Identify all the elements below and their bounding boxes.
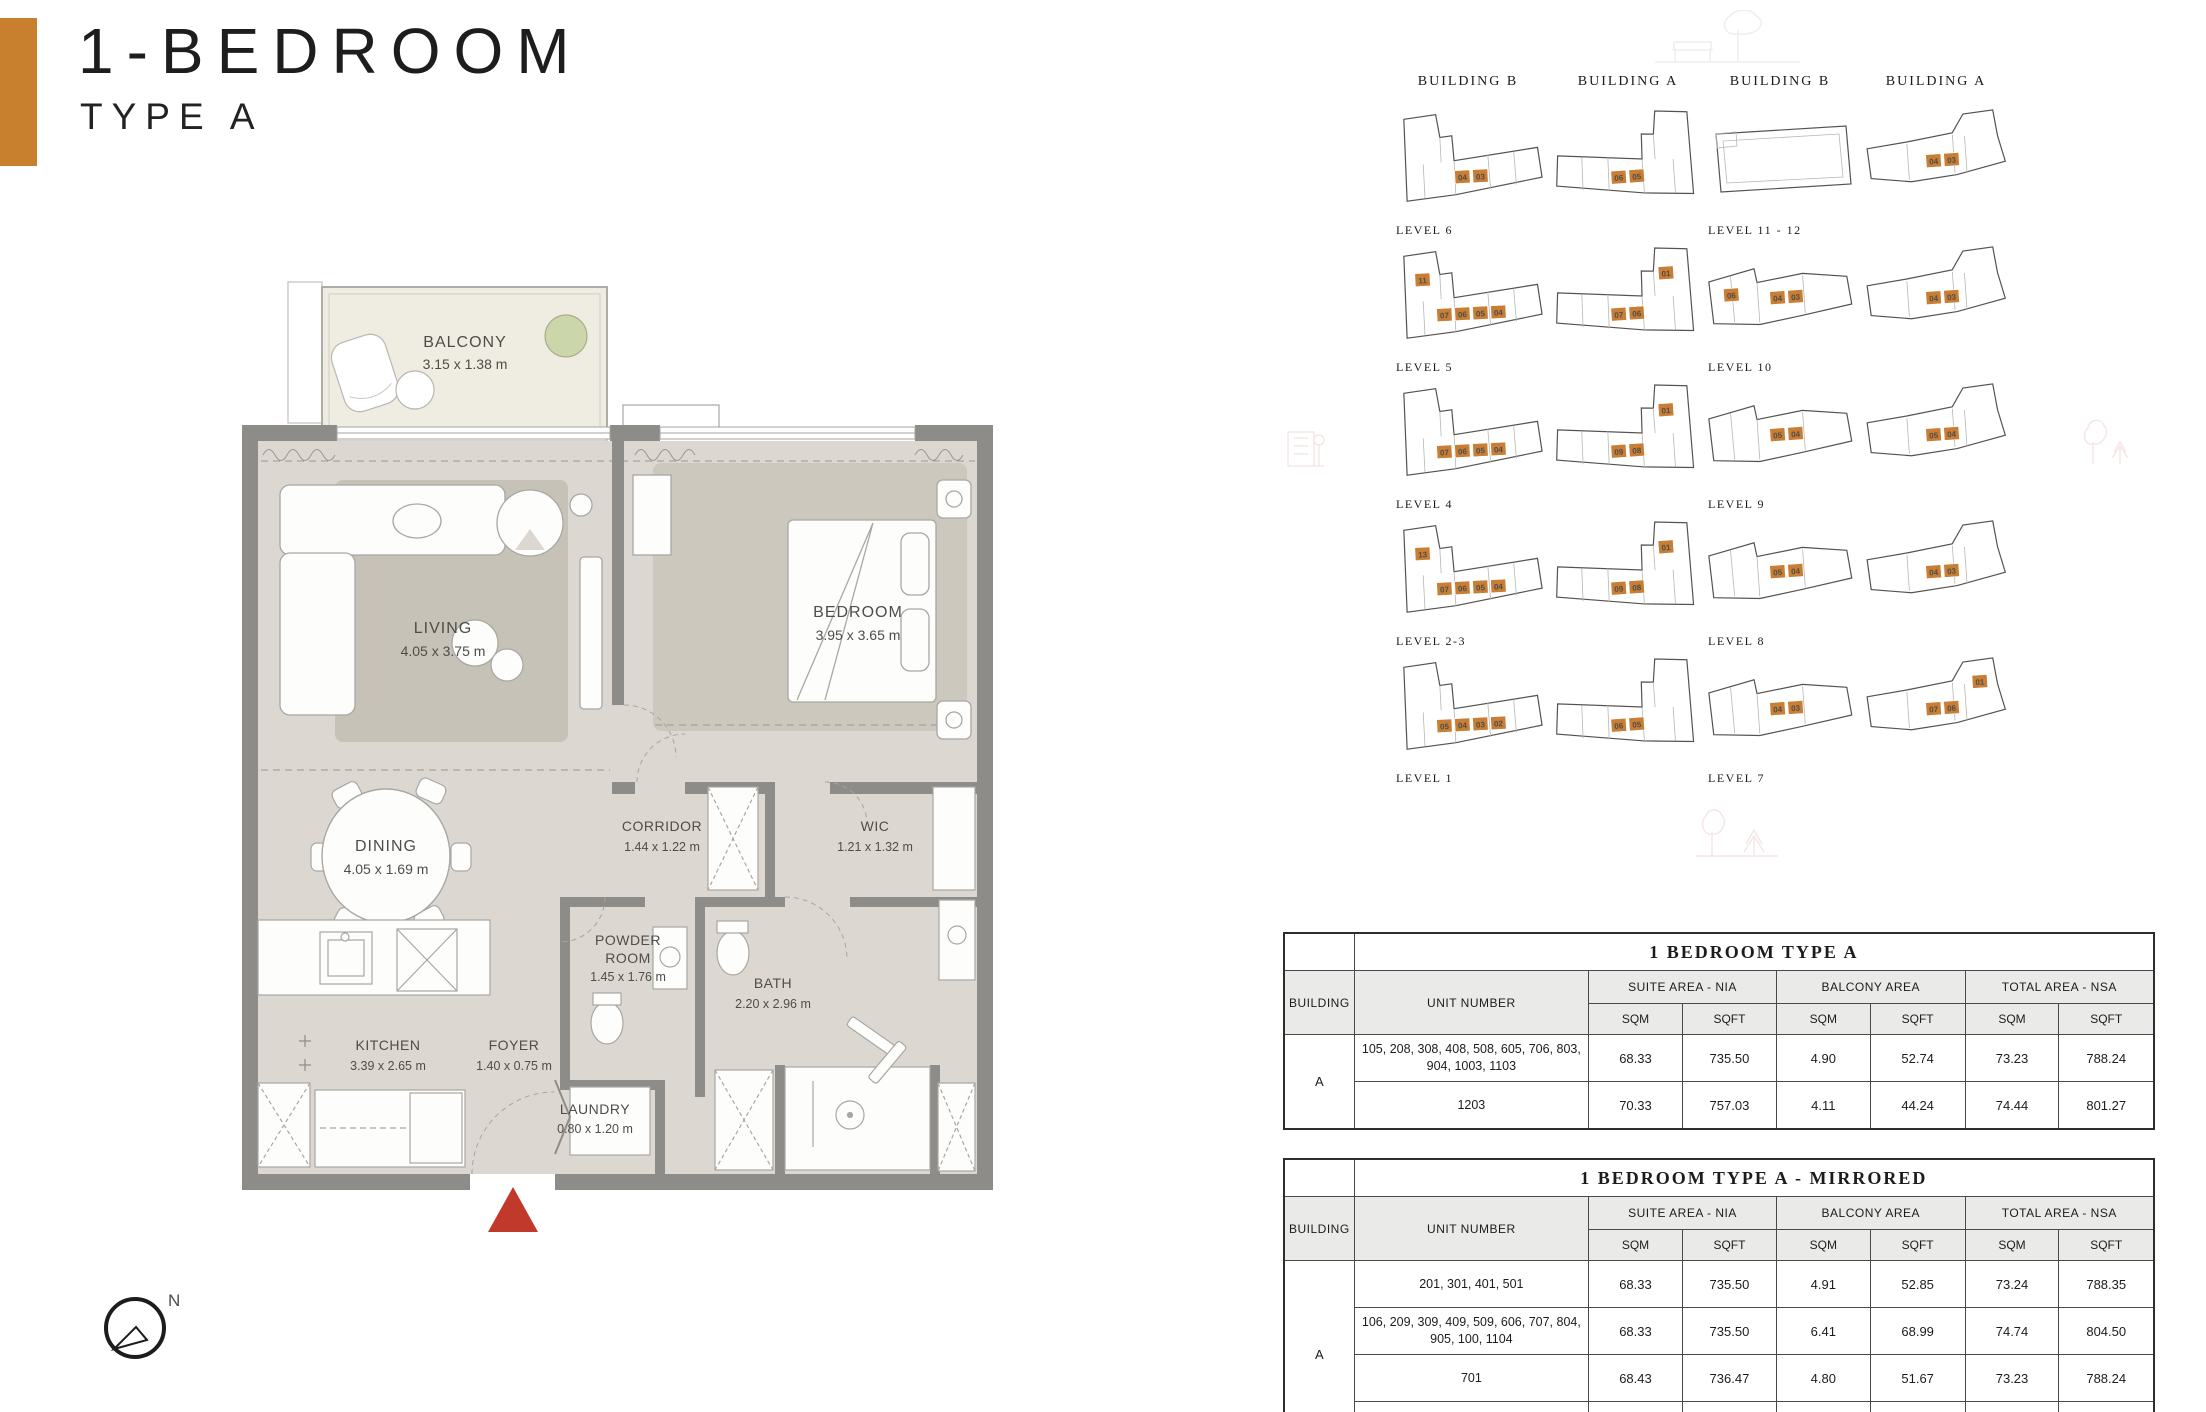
kitchen-dims: 3.39 x 2.65 m — [350, 1059, 426, 1073]
unit-number: 03 — [1791, 293, 1801, 303]
tree-icon — [545, 315, 587, 357]
unit-number: 04 — [1494, 582, 1504, 591]
column-subheader: SQM — [1589, 1004, 1683, 1035]
area-value-cell: 74.44 — [1965, 1082, 2059, 1130]
area-value-cell: 735.50 — [1682, 1261, 1776, 1308]
unit-number: 05 — [1476, 446, 1486, 455]
unit-number: 04 — [1947, 430, 1957, 440]
building-header-3: BUILDING B — [1700, 74, 1860, 94]
floor-plan: BALCONY 3.15 x 1.38 m — [225, 185, 1015, 1255]
column-subheader: SQM — [1965, 1230, 2059, 1261]
area-value-cell: 735.50 — [1682, 1308, 1776, 1355]
unit-number: 04 — [1791, 567, 1801, 577]
level-diagram: 0403 — [1856, 241, 2016, 375]
unit-number: 04 — [1458, 173, 1468, 182]
unit-number: 05 — [1476, 583, 1486, 592]
level-diagram: 090801 — [1548, 378, 1708, 512]
unit-number: 06 — [1458, 584, 1468, 593]
wic-label: WIC — [861, 818, 890, 834]
corner-cell — [1284, 1159, 1354, 1197]
column-header-area-group: SUITE AREA - NIA — [1589, 1197, 1777, 1230]
unit-number: 04 — [1494, 308, 1504, 317]
level-diagram: 090801 — [1548, 515, 1708, 649]
area-value-cell: 788.35 — [2059, 1261, 2154, 1308]
compass-icon: N — [88, 1278, 188, 1378]
area-value-cell: 736.47 — [1682, 1355, 1776, 1402]
balcony-area: BALCONY 3.15 x 1.38 m — [288, 282, 719, 441]
trees-watermark — [2078, 412, 2138, 472]
level-diagram: 0403 — [1856, 515, 2016, 649]
table-row: 120370.33757.034.1144.2474.44801.27 — [1284, 1082, 2154, 1130]
area-value-cell: 4.91 — [1776, 1261, 1870, 1308]
foyer-label: FOYER — [489, 1037, 540, 1053]
level-label: LEVEL 6 — [1396, 223, 1453, 238]
column-subheader: SQFT — [1870, 1230, 1965, 1261]
level-label: LEVEL 10 — [1708, 360, 1773, 375]
area-value-cell: 73.23 — [1965, 1355, 2059, 1402]
column-subheader: SQM — [1776, 1230, 1870, 1261]
area-value-cell: 73.23 — [1965, 1035, 2059, 1082]
kitchen-label: KITCHEN — [356, 1037, 421, 1053]
column-header-area-group: BALCONY AREA — [1776, 1197, 1965, 1230]
level-diagram: 0403 — [1856, 104, 2016, 238]
table-title: 1 BEDROOM TYPE A - MIRRORED — [1354, 1159, 2154, 1197]
unit-number: 04 — [1494, 445, 1504, 454]
unit-number: 05 — [1773, 568, 1783, 578]
corridor-label: CORRIDOR — [622, 818, 702, 834]
level-label: LEVEL 9 — [1708, 497, 1765, 512]
level-label: LEVEL 4 — [1396, 497, 1453, 512]
column-subheader: SQM — [1589, 1230, 1683, 1261]
unit-number: 08 — [1632, 446, 1642, 456]
area-value-cell: 51.67 — [1870, 1355, 1965, 1402]
column-subheader: SQFT — [1682, 1230, 1776, 1261]
area-value-cell: 68.99 — [1870, 1308, 1965, 1355]
area-value-cell: 70.60 — [1589, 1402, 1683, 1412]
unit-number: 01 — [1661, 543, 1671, 553]
area-value-cell: 58.99 — [1870, 1402, 1965, 1412]
column-header-area-group: SUITE AREA - NIA — [1589, 971, 1777, 1004]
trees-watermark-2 — [1692, 800, 1782, 864]
area-value-cell: 68.33 — [1589, 1035, 1683, 1082]
unit-number-cell: 201, 301, 401, 501 — [1354, 1261, 1588, 1308]
balcony-label: BALCONY — [423, 334, 506, 351]
bedroom-label: BEDROOM — [813, 604, 903, 621]
unit-number: 13 — [1418, 550, 1428, 559]
column-header-area-group: BALCONY AREA — [1776, 971, 1965, 1004]
unit-number: 05 — [1632, 172, 1642, 182]
column-subheader: SQFT — [2059, 1004, 2154, 1035]
dining-dims: 4.05 x 1.69 m — [344, 861, 429, 877]
level-diagram: 07060504LEVEL 4 — [1388, 378, 1548, 512]
unit-number: 03 — [1947, 293, 1957, 303]
column-header-area-group: TOTAL AREA - NSA — [1965, 1197, 2154, 1230]
unit-number: 01 — [1661, 406, 1671, 416]
unit-number: 09 — [1614, 447, 1624, 457]
unit-number: 06 — [1458, 447, 1468, 456]
unit-number: 03 — [1791, 704, 1801, 714]
area-value-cell: 52.85 — [1870, 1261, 1965, 1308]
level-diagram: LEVEL 11 - 12 — [1700, 104, 1860, 238]
area-table-type-a: 1 BEDROOM TYPE ABUILDINGUNIT NUMBERSUITE… — [1283, 932, 2155, 1130]
column-subheader: SQFT — [1682, 1004, 1776, 1035]
table-row: 120470.60759.935.4858.9976.08818.92 — [1284, 1402, 2154, 1412]
level-label: LEVEL 1 — [1396, 771, 1453, 786]
column-header-building: BUILDING — [1284, 971, 1354, 1035]
unit-number: 04 — [1929, 157, 1939, 167]
table-row: 106, 209, 309, 409, 509, 606, 707, 804, … — [1284, 1308, 2154, 1355]
accent-bar — [0, 18, 37, 166]
unit-number: 04 — [1773, 705, 1783, 715]
level-diagram: 0706050413LEVEL 2-3 — [1388, 515, 1548, 649]
level-label: LEVEL 8 — [1708, 634, 1765, 649]
dining-label: DINING — [355, 838, 417, 855]
unit-number: 03 — [1947, 156, 1957, 166]
laundry-dims: 0.80 x 1.20 m — [557, 1122, 633, 1136]
bath-dims: 2.20 x 2.96 m — [735, 997, 811, 1011]
building-header-1: BUILDING B — [1388, 74, 1548, 94]
area-value-cell: 788.24 — [2059, 1355, 2154, 1402]
key-plans-section: BUILDING B BUILDING A BUILDING B BUILDIN… — [1388, 74, 2078, 804]
entrance-marker — [488, 1187, 538, 1232]
area-value-cell: 74.74 — [1965, 1308, 2059, 1355]
building-cell: A — [1284, 1035, 1354, 1130]
unit-number: 07 — [1440, 448, 1450, 457]
unit-number: 09 — [1614, 584, 1624, 594]
area-value-cell: 70.33 — [1589, 1082, 1683, 1130]
area-value-cell: 68.43 — [1589, 1355, 1683, 1402]
column-subheader: SQM — [1965, 1004, 2059, 1035]
area-value-cell: 818.92 — [2059, 1402, 2154, 1412]
building-header-4: BUILDING A — [1856, 74, 2016, 94]
table-title: 1 BEDROOM TYPE A — [1354, 933, 2154, 971]
level-label: LEVEL 7 — [1708, 771, 1765, 786]
unit-number: 02 — [1494, 719, 1504, 728]
corridor-dims: 1.44 x 1.22 m — [624, 840, 700, 854]
column-subheader: SQFT — [1870, 1004, 1965, 1035]
area-value-cell: 73.24 — [1965, 1261, 2059, 1308]
unit-number: 01 — [1975, 678, 1985, 688]
area-value-cell: 4.11 — [1776, 1082, 1870, 1130]
powder-dims: 1.45 x 1.76 m — [590, 970, 666, 984]
level-diagram: 070601 — [1548, 241, 1708, 375]
unit-number: 07 — [1614, 310, 1624, 320]
page-subtitle: TYPE A — [80, 96, 264, 138]
level-label: LEVEL 5 — [1396, 360, 1453, 375]
level-diagram: 040306LEVEL 10 — [1700, 241, 1860, 375]
unit-number: 03 — [1947, 567, 1957, 577]
unit-number: 01 — [1661, 269, 1671, 279]
level-label: LEVEL 2-3 — [1396, 634, 1466, 649]
unit-number: 04 — [1773, 294, 1783, 304]
column-header-unit-number: UNIT NUMBER — [1354, 971, 1588, 1035]
unit-number-cell: 1203 — [1354, 1082, 1588, 1130]
area-value-cell: 6.41 — [1776, 1308, 1870, 1355]
unit-number: 07 — [1929, 705, 1939, 715]
level-diagram: 0605 — [1548, 652, 1708, 786]
area-value-cell: 804.50 — [2059, 1308, 2154, 1355]
area-value-cell: 788.24 — [2059, 1035, 2154, 1082]
building-header-2: BUILDING A — [1548, 74, 1708, 94]
level-diagram: 0504 — [1856, 378, 2016, 512]
area-value-cell: 757.03 — [1682, 1082, 1776, 1130]
unit-number: 06 — [1614, 173, 1624, 183]
area-value-cell: 4.80 — [1776, 1355, 1870, 1402]
area-value-cell: 5.48 — [1776, 1402, 1870, 1412]
unit-number: 08 — [1632, 583, 1642, 593]
foyer-dims: 1.40 x 0.75 m — [476, 1059, 552, 1073]
level-diagram: 0504LEVEL 9 — [1700, 378, 1860, 512]
unit-number: 06 — [1947, 704, 1957, 714]
area-value-cell: 759.93 — [1682, 1402, 1776, 1412]
level-diagram: 0605 — [1548, 104, 1708, 238]
living-dims: 4.05 x 3.75 m — [401, 643, 486, 659]
level-diagram: 0504LEVEL 8 — [1700, 515, 1860, 649]
unit-number: 04 — [1458, 721, 1468, 730]
unit-number: 07 — [1440, 585, 1450, 594]
area-value-cell: 68.33 — [1589, 1261, 1683, 1308]
level-diagram: 070601 — [1856, 652, 2016, 786]
powder-label-2: ROOM — [605, 950, 651, 966]
unit-number: 07 — [1440, 311, 1450, 320]
unit-number: 05 — [1476, 309, 1486, 318]
wic-dims: 1.21 x 1.32 m — [837, 840, 913, 854]
area-table-type-a-mirrored: 1 BEDROOM TYPE A - MIRROREDBUILDINGUNIT … — [1283, 1158, 2155, 1412]
building-watermark — [1278, 418, 1334, 474]
bedroom-dims: 3.95 x 3.65 m — [816, 627, 901, 643]
table-row: 70168.43736.474.8051.6773.23788.24 — [1284, 1355, 2154, 1402]
area-value-cell: 76.08 — [1965, 1402, 2059, 1412]
building-cell: A — [1284, 1261, 1354, 1412]
unit-number-cell: 701 — [1354, 1355, 1588, 1402]
area-value-cell: 735.50 — [1682, 1035, 1776, 1082]
area-value-cell: 52.74 — [1870, 1035, 1965, 1082]
unit-number: 06 — [1458, 310, 1468, 319]
laundry-label: LAUNDRY — [560, 1101, 630, 1117]
column-header-unit-number: UNIT NUMBER — [1354, 1197, 1588, 1261]
unit-number-cell: 105, 208, 308, 408, 508, 605, 706, 803, … — [1354, 1035, 1588, 1082]
floorplan-page: 1-BEDROOM TYPE A — [0, 0, 2206, 1412]
unit-number: 03 — [1476, 172, 1486, 181]
area-value-cell: 68.33 — [1589, 1308, 1683, 1355]
level-diagram: 0403LEVEL 6 — [1388, 104, 1548, 238]
unit-number: 05 — [1929, 431, 1939, 441]
table-row: A105, 208, 308, 408, 508, 605, 706, 803,… — [1284, 1035, 2154, 1082]
level-diagram: 0403LEVEL 7 — [1700, 652, 1860, 786]
unit-number: 05 — [1440, 722, 1450, 731]
unit-number-cell: 1204 — [1354, 1402, 1588, 1412]
unit-number: 06 — [1727, 291, 1737, 301]
unit-number: 04 — [1929, 568, 1939, 578]
column-header-building: BUILDING — [1284, 1197, 1354, 1261]
unit-number: 05 — [1632, 720, 1642, 730]
unit-number: 06 — [1614, 721, 1624, 731]
level-diagram: 0706050411LEVEL 5 — [1388, 241, 1548, 375]
level-diagram: 05040302LEVEL 1 — [1388, 652, 1548, 786]
area-value-cell: 4.90 — [1776, 1035, 1870, 1082]
unit-number: 06 — [1632, 309, 1642, 319]
page-title: 1-BEDROOM — [78, 14, 583, 88]
level-label: LEVEL 11 - 12 — [1708, 223, 1802, 238]
area-value-cell: 44.24 — [1870, 1082, 1965, 1130]
powder-label-1: POWDER — [595, 932, 661, 948]
unit-number: 04 — [1791, 430, 1801, 440]
unit-number: 11 — [1418, 276, 1427, 285]
corner-cell — [1284, 933, 1354, 971]
area-value-cell: 801.27 — [2059, 1082, 2154, 1130]
unit-number: 05 — [1773, 431, 1783, 441]
bench-tree-watermark — [1650, 10, 1820, 72]
unit-number: 03 — [1476, 720, 1486, 729]
unit-number-cell: 106, 209, 309, 409, 509, 606, 707, 804, … — [1354, 1308, 1588, 1355]
table-row: A201, 301, 401, 50168.33735.504.9152.857… — [1284, 1261, 2154, 1308]
compass-north-label: N — [168, 1291, 180, 1310]
column-subheader: SQM — [1776, 1004, 1870, 1035]
unit-number: 04 — [1929, 294, 1939, 304]
column-subheader: SQFT — [2059, 1230, 2154, 1261]
bath-label: BATH — [754, 975, 792, 991]
balcony-dims: 3.15 x 1.38 m — [423, 356, 508, 372]
column-header-area-group: TOTAL AREA - NSA — [1965, 971, 2154, 1004]
living-label: LIVING — [414, 620, 472, 637]
